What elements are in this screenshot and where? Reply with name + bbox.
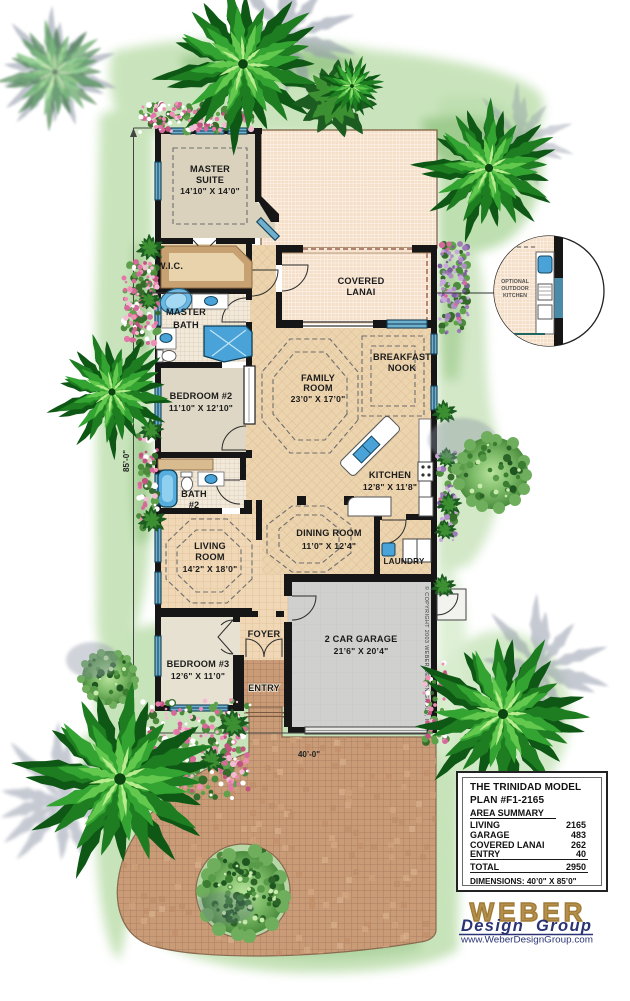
svg-text:OPTIONAL: OPTIONAL [501,279,530,285]
svg-text:11’0" X 12’4": 11’0" X 12’4" [302,541,356,551]
svg-text:LIVING: LIVING [470,820,500,830]
svg-text:BEDROOM #2: BEDROOM #2 [170,391,233,401]
svg-text:DIMENSIONS: 40’0" X 85’0": DIMENSIONS: 40’0" X 85’0" [470,877,577,886]
svg-text:BATH: BATH [173,320,199,330]
svg-text:MASTER: MASTER [166,307,206,317]
svg-text:TOTAL: TOTAL [470,862,500,872]
svg-text:ENTRY: ENTRY [470,849,500,859]
svg-text:NOOK: NOOK [388,363,417,373]
svg-text:SUITE: SUITE [196,175,224,185]
svg-text:LANAI: LANAI [346,287,375,297]
svg-text:ENTRY: ENTRY [248,683,280,693]
svg-text:THE TRINIDAD MODEL: THE TRINIDAD MODEL [470,782,581,793]
svg-text:12’6" X 11’0": 12’6" X 11’0" [171,671,225,681]
svg-text:FAMILY: FAMILY [301,373,335,383]
svg-text:2165: 2165 [566,820,586,830]
svg-text:21’6" X 20’4": 21’6" X 20’4" [334,646,389,656]
svg-text:23’0" X 17’0": 23’0" X 17’0" [291,394,346,404]
svg-text:483: 483 [571,830,586,840]
svg-text:DINING ROOM: DINING ROOM [296,528,362,538]
svg-text:PLAN #F1-2165: PLAN #F1-2165 [470,795,544,806]
svg-text:2950: 2950 [566,862,586,872]
svg-text:12’8" X 11’8": 12’8" X 11’8" [363,482,417,492]
svg-text:FOYER: FOYER [248,629,281,639]
svg-text:AREA SUMMARY: AREA SUMMARY [470,808,544,818]
svg-text:40’-0": 40’-0" [298,750,320,759]
svg-text:#2: #2 [189,500,200,510]
svg-text:BEDROOM #3: BEDROOM #3 [167,659,230,669]
svg-text:BREAKFAST: BREAKFAST [373,352,431,362]
svg-text:BATH: BATH [181,489,207,499]
svg-text:LAUNDRY: LAUNDRY [383,557,424,566]
svg-text:14’10" X 14’0": 14’10" X 14’0" [180,186,240,196]
svg-text:85’-0": 85’-0" [122,450,131,472]
svg-text:MASTER: MASTER [190,164,230,174]
svg-text:ROOM: ROOM [195,552,225,562]
svg-text:W.I.C.: W.I.C. [157,261,183,271]
svg-text:LIVING: LIVING [194,541,226,551]
svg-text:GARAGE: GARAGE [470,830,510,840]
svg-text:www.WeberDesignGroup.com: www.WeberDesignGroup.com [460,935,593,945]
svg-text:11’10" X 12’10": 11’10" X 12’10" [169,403,233,413]
svg-text:COVERED: COVERED [338,276,385,286]
svg-text:40: 40 [576,849,586,859]
svg-text:2 CAR GARAGE: 2 CAR GARAGE [325,634,398,644]
svg-text:14’2" X 18’0": 14’2" X 18’0" [183,564,238,574]
svg-text:ROOM: ROOM [303,383,333,393]
svg-text:OUTDOOR: OUTDOOR [501,286,529,292]
svg-text:KITCHEN: KITCHEN [503,293,527,299]
svg-text:KITCHEN: KITCHEN [369,470,411,480]
svg-text:Design Group: Design Group [461,917,591,935]
